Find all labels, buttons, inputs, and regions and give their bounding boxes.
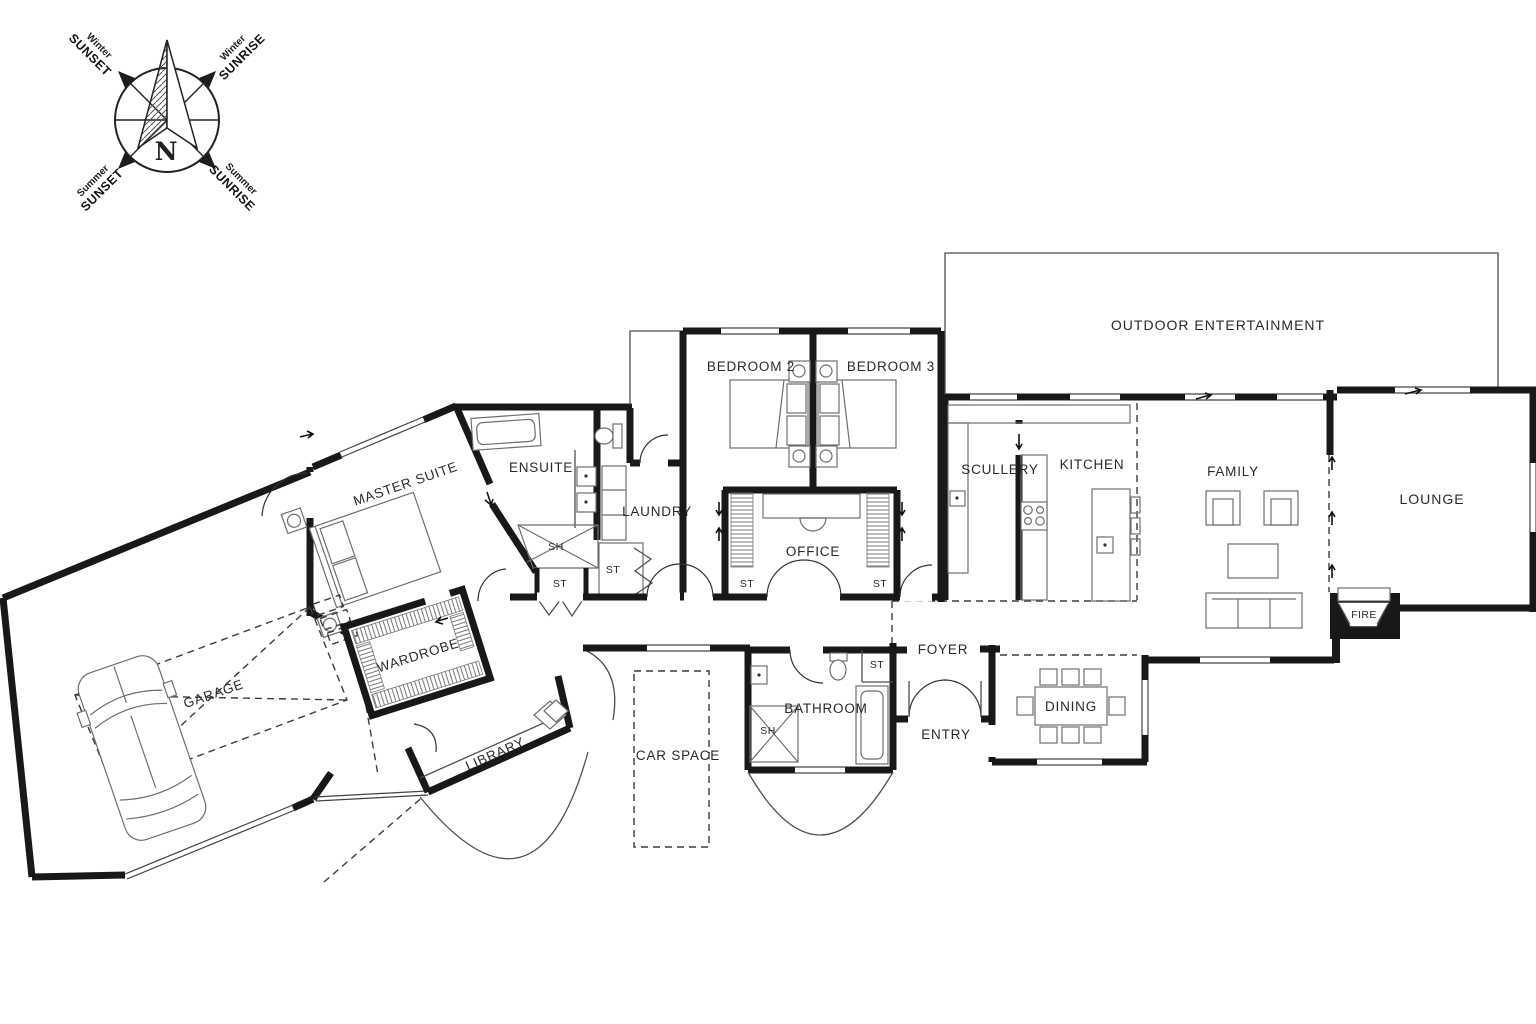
bathroom-storage-label: ST [870,659,884,671]
compass-rose: N Winter SUNSET Winter SUNRISE Summer SU… [66,23,268,214]
lounge: LOUNGE FIRE [1330,387,1536,663]
office-storage-left-label: ST [740,578,754,590]
winter-sunset-label: Winter SUNSET [66,23,122,79]
laundry-storage: ST [599,543,652,595]
fireplace-icon: FIRE [1330,588,1400,663]
floor-plan-page: OUTDOOR ENTERTAINMENT [0,0,1536,1024]
family: FAMILY [1145,390,1335,663]
ensuite-label: ENSUITE [509,460,573,475]
bathroom-label: BATHROOM [784,701,867,716]
office-storage-right-label: ST [873,578,887,590]
bedroom2-label: BEDROOM 2 [707,359,795,374]
laundry-bench-icon [602,466,626,540]
laundry: ST LAUNDRY [599,466,692,595]
dining: DINING [992,645,1148,765]
entry-label: ENTRY [921,727,971,742]
cooktop-icon [1021,502,1047,530]
ensuite-storage-label: ST [553,578,567,590]
office-chair-icon [800,518,826,531]
office: OFFICE ST ST [716,493,905,590]
foyer-label: FOYER [918,642,969,657]
sofa-icon [1206,593,1302,628]
bathroom: SH ST BATHROOM [748,643,907,835]
open-plan-dashed-boundaries [324,403,1329,882]
summer-sunrise-label: Summer SUNRISE [206,154,265,213]
north-needle-icon [138,40,197,148]
foyer-entry: FOYER ENTRY [895,642,1000,742]
garage-label: GARAGE [182,676,246,711]
bedroom2-bed-icon [730,380,808,448]
scullery-label: SCULLERY [961,462,1038,477]
car-icon [66,649,218,848]
office-desk-icon [763,494,860,518]
wardrobe-label: WARDROBE [375,635,461,675]
lounge-label: LOUNGE [1399,491,1464,507]
bathroom-toilet-icon [830,653,847,680]
bathroom-shower-label: SH [760,725,775,737]
kitchen-bench-top-icon [948,405,1130,423]
north-letter: N [155,137,178,166]
laundry-storage-label: ST [606,564,620,576]
wardrobe: WARDROBE [344,589,490,715]
bathroom-sink-icon [751,666,767,684]
outdoor-entertainment-label: OUTDOOR ENTERTAINMENT [1111,317,1325,333]
bedroom3-label: BEDROOM 3 [847,359,935,374]
kitchen-label: KITCHEN [1060,457,1125,472]
family-armchair-icon [1206,491,1298,525]
ensuite-storage: ST [537,568,586,616]
dining-label: DINING [1045,699,1097,714]
outdoor-entertainment-area: OUTDOOR ENTERTAINMENT [945,253,1498,395]
summer-sunset-label: Summer SUNSET [70,158,126,214]
ensuite-bath-icon [471,414,541,451]
office-label: OFFICE [786,544,840,559]
ensuite-shower-label: SH [548,541,563,553]
winter-sunrise-label: Winter SUNRISE [208,23,267,82]
car-space-label: CAR SPACE [636,748,720,763]
family-label: FAMILY [1207,464,1259,479]
bathroom-storage: ST [862,650,893,682]
bedroom3-bed-icon [818,380,896,448]
floor-plan-drawing: OUTDOOR ENTERTAINMENT [0,0,1536,1024]
coffee-table-icon [1228,544,1278,578]
ensuite-vanity-icon [575,450,596,528]
bathroom-bath-icon [856,686,888,764]
front-porch: CAR SPACE [583,645,750,847]
fire-label: FIRE [1351,609,1377,621]
kitchen-island-icon [1092,489,1140,601]
